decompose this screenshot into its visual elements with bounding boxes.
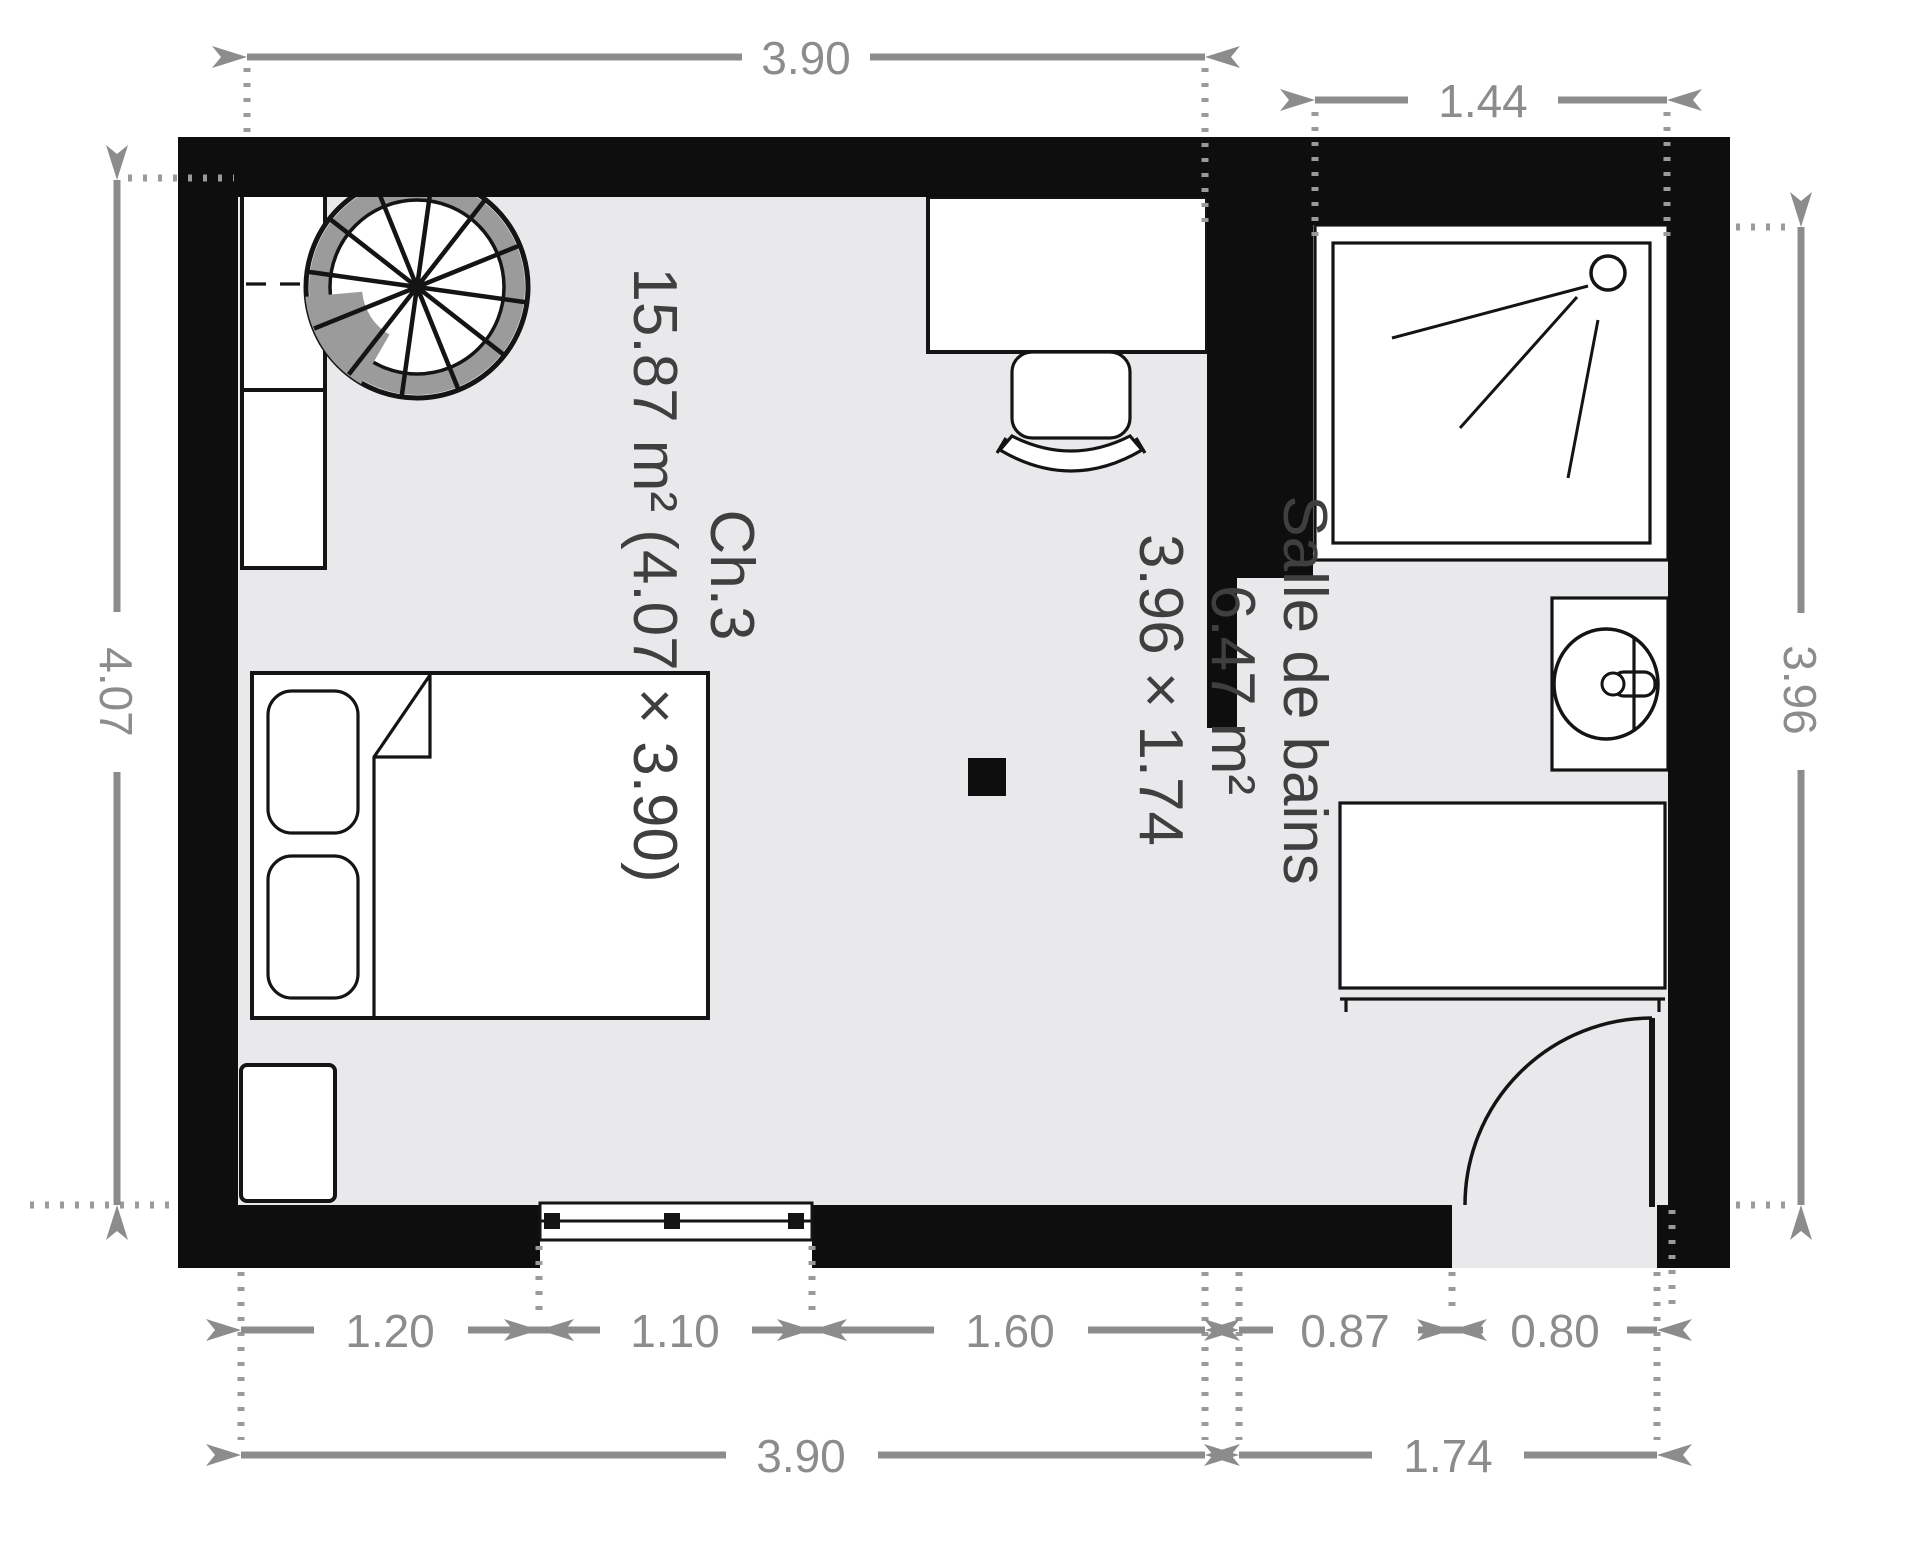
washbasin (1552, 598, 1668, 770)
shower-head (1591, 256, 1625, 290)
chair-seat (1012, 352, 1130, 438)
desk (928, 197, 1207, 352)
wardrobe (242, 180, 325, 568)
dim-label-seg-3: 1.60 (965, 1305, 1055, 1357)
wardrobe-lower (242, 390, 325, 568)
dim-label-total-bathroom: 1.74 (1403, 1430, 1493, 1482)
cabinet-body (1340, 803, 1665, 988)
dim-top-bedroom: 3.90 (247, 32, 1205, 84)
bathroom-name: Salle de bains (1270, 495, 1339, 885)
window-mullion-right (788, 1213, 804, 1229)
floor-plan-svg: 3.90 1.44 4.07 3.96 1.20 1 (0, 0, 1920, 1548)
floor-plan-page: 3.90 1.44 4.07 3.96 1.20 1 (0, 0, 1920, 1548)
wall-bottom-middle (812, 1205, 1452, 1268)
wall-bottom-right (1657, 1205, 1730, 1268)
bedroom-name: Ch.3 (697, 510, 766, 641)
window-mullion-left (544, 1213, 560, 1229)
dim-label-seg-1: 1.20 (345, 1305, 435, 1357)
dim-bottom-total-bathroom: 1.74 (1239, 1430, 1657, 1482)
dim-right-height: 3.96 (1774, 227, 1826, 1205)
dim-label-right-height: 3.96 (1774, 645, 1826, 735)
bathroom-cabinet (1340, 803, 1665, 1012)
dim-label-total-bedroom: 3.90 (756, 1430, 846, 1482)
wall-left (178, 137, 238, 1268)
spiral-staircase (305, 176, 528, 398)
dim-label-top-bathroom: 1.44 (1438, 75, 1528, 127)
bedroom-details: 15.87 m² (4.07 × 3.90) (620, 267, 689, 882)
dim-label-seg-4: 0.87 (1300, 1305, 1390, 1357)
dim-bottom-seg-2: 1.10 (539, 1305, 812, 1357)
dim-label-left-height: 4.07 (90, 647, 142, 737)
dim-label-seg-5: 0.80 (1510, 1305, 1600, 1357)
dim-label-top-bedroom: 3.90 (761, 32, 851, 84)
pillar (968, 758, 1006, 796)
dim-left-height: 4.07 (90, 180, 142, 1205)
dim-label-seg-2: 1.10 (630, 1305, 720, 1357)
wall-right (1668, 137, 1730, 1268)
wall-top-bathroom (1313, 137, 1730, 225)
stair-center-post (409, 279, 425, 295)
window (540, 1203, 812, 1240)
wall-bottom-left (178, 1205, 540, 1268)
dim-bottom-seg-3: 1.60 (812, 1305, 1205, 1357)
wall-top-bedroom (178, 137, 1313, 197)
dim-top-bathroom: 1.44 (1315, 75, 1667, 127)
dim-bottom-seg-5: 0.80 (1452, 1305, 1657, 1357)
nightstand (241, 1065, 335, 1201)
washbasin-faucet-knob (1602, 673, 1624, 695)
pillow-bottom (268, 856, 358, 998)
dim-bottom-seg-1: 1.20 (241, 1305, 539, 1357)
shower (1315, 225, 1668, 560)
window-mullion-center (664, 1213, 680, 1229)
dim-bottom-seg-4: 0.87 (1239, 1305, 1452, 1357)
dim-bottom-total-bedroom: 3.90 (241, 1430, 1205, 1482)
wall-gap-floor (1207, 728, 1237, 1205)
door-opening-floor (1452, 1205, 1657, 1268)
pillow-top (268, 691, 358, 833)
bathroom-size: 3.96 × 1.74 (1126, 534, 1195, 846)
bathroom-area: 6.47 m² (1198, 585, 1267, 795)
